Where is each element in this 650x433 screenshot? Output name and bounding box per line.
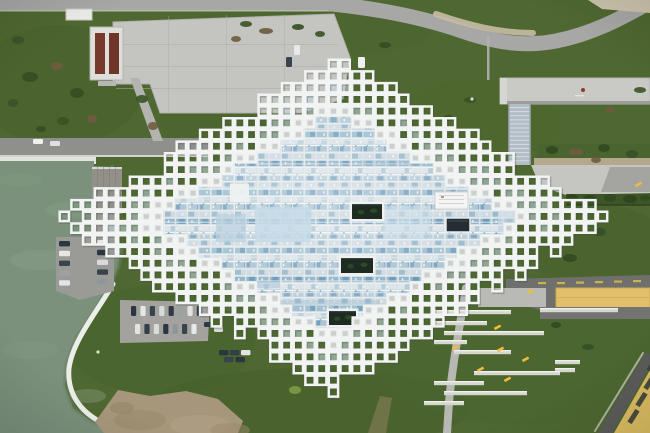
aerial-photo <box>0 0 650 433</box>
aerial-photo-canvas <box>0 0 650 433</box>
aerial-photo-figure <box>0 0 650 433</box>
photo-vignette <box>0 0 650 433</box>
